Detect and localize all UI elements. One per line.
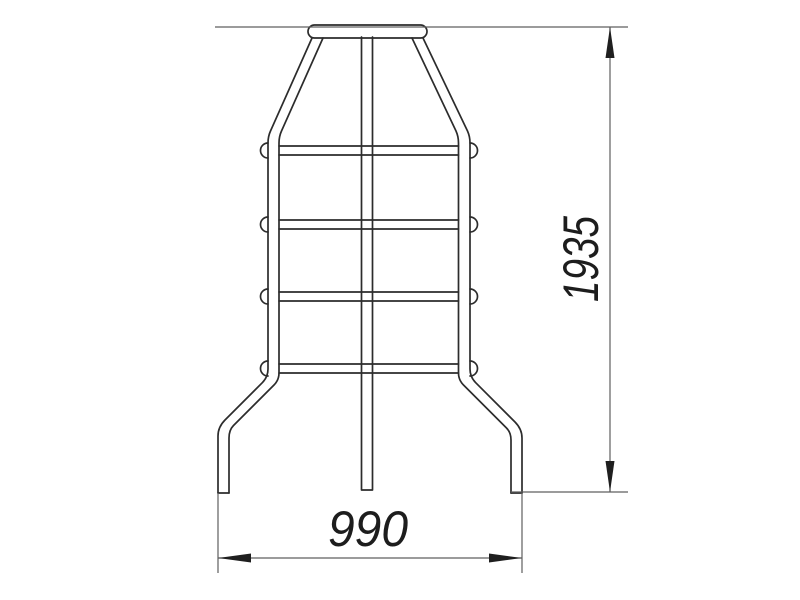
frame-structure (218, 25, 522, 493)
arrow-left-icon (218, 554, 251, 563)
rung-end-knobs-right (470, 143, 478, 376)
right-rail-outer-line (423, 38, 522, 493)
left-rail-outer-line (218, 38, 312, 493)
right-rail-inner-line (412, 38, 511, 493)
rung-tubes (279, 146, 459, 373)
height-dimension-label: 1935 (553, 216, 609, 302)
drawing-page: 1935 990 (0, 0, 800, 600)
arrow-down-icon (606, 461, 615, 492)
rung-end-knobs-left (261, 143, 269, 376)
technical-drawing-canvas: 1935 990 (0, 0, 800, 600)
dimension-labels: 1935 990 (328, 216, 609, 557)
left-rail-inner-line (229, 38, 323, 493)
arrow-right-icon (489, 554, 522, 563)
width-dimension-label: 990 (328, 501, 408, 557)
arrow-up-icon (606, 27, 615, 58)
center-pole (362, 37, 373, 490)
